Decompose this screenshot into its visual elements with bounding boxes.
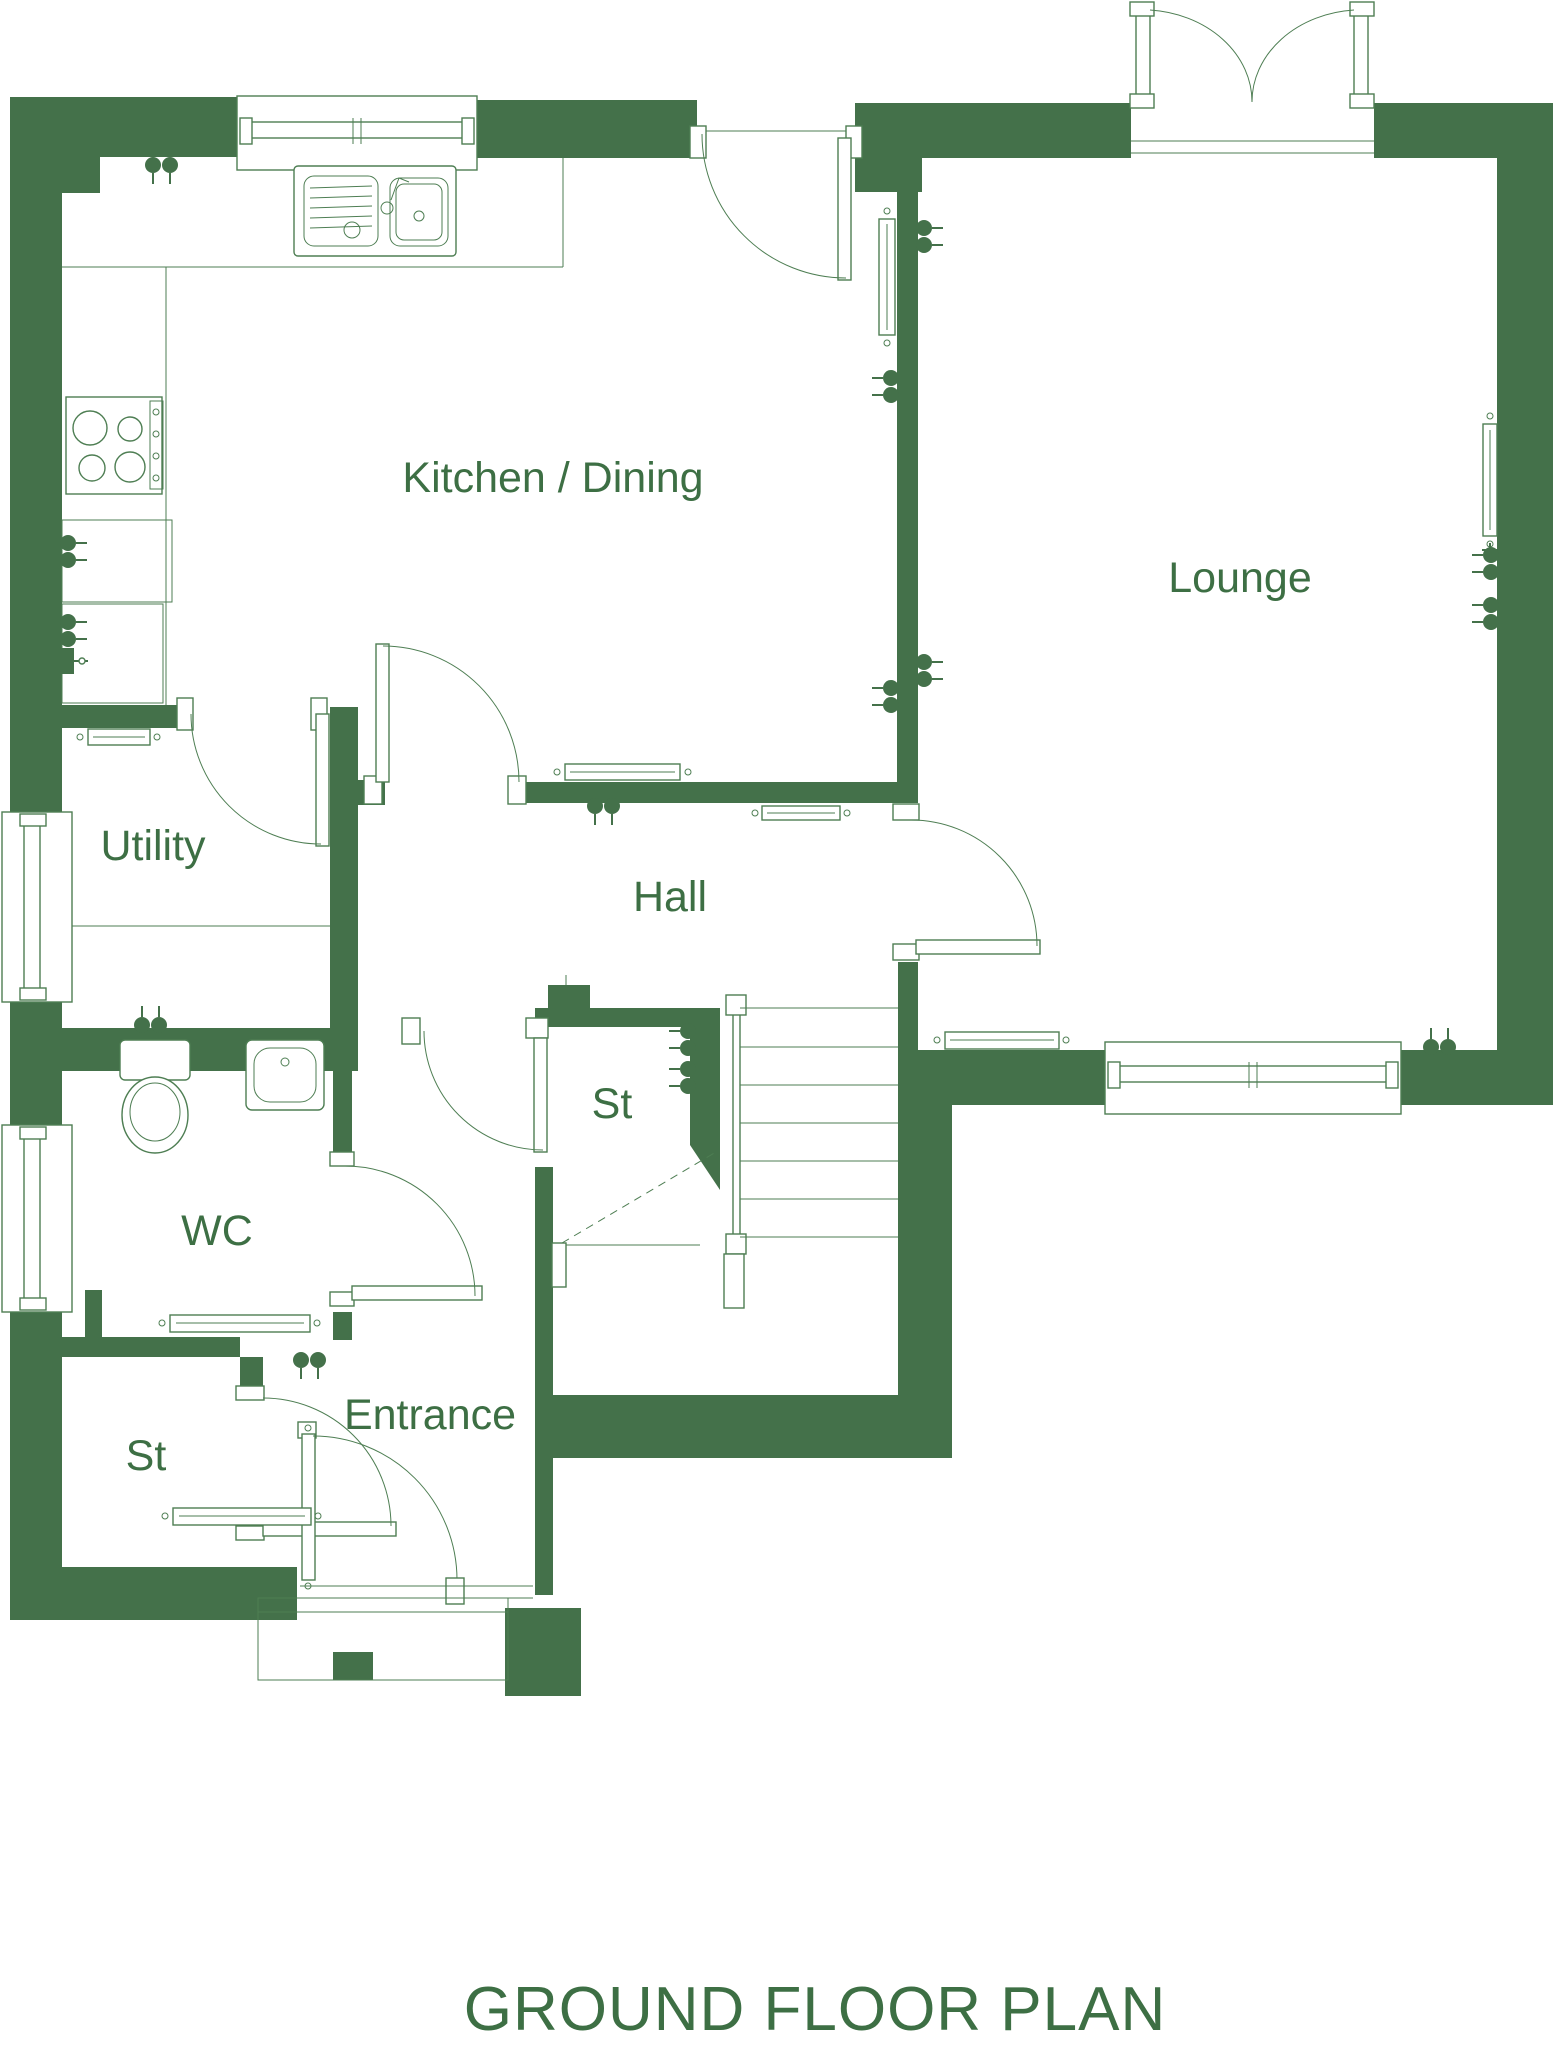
radiator (554, 764, 691, 780)
wall-segment (12, 1567, 297, 1620)
radiator (934, 1032, 1069, 1049)
wall-segment (535, 1167, 553, 1395)
wall-segment (62, 705, 177, 728)
understairs-store-door (402, 1018, 548, 1152)
radiator (1483, 413, 1497, 547)
wall-segment (535, 1458, 553, 1595)
floor-plan-drawing: Kitchen / Dining Lounge Utility Hall St … (0, 0, 1564, 2048)
wc-window (2, 1125, 72, 1312)
porch-canopy (258, 1586, 533, 1680)
wall-segment (898, 962, 918, 1050)
wall-segment (535, 1395, 952, 1458)
room-label-lounge: Lounge (1168, 554, 1312, 602)
wall-segment (548, 985, 590, 1008)
walls (10, 97, 1553, 1696)
plan-title: GROUND FLOOR PLAN (464, 1975, 1167, 2044)
wash-basin (246, 1040, 324, 1110)
wall-segment (333, 1312, 352, 1340)
radiator (159, 1315, 320, 1332)
french-doors (1130, 2, 1374, 153)
hob (66, 397, 163, 494)
wall-segment (10, 1000, 62, 1125)
room-label-utility: Utility (100, 822, 206, 870)
hall-lounge-door (893, 804, 1040, 960)
wall-segment (12, 157, 100, 193)
wall-segment (477, 100, 697, 158)
wall-segment (1374, 103, 1553, 158)
kitchen-sink (294, 166, 456, 256)
floor-plan-page: Kitchen / Dining Lounge Utility Hall St … (0, 0, 1564, 2048)
lounge-window (1105, 1042, 1401, 1114)
radiator (162, 1508, 321, 1525)
room-label-store-under-stairs: St (592, 1080, 633, 1128)
room-label-store-entrance: St (126, 1432, 167, 1480)
radiator (77, 729, 160, 745)
porch-pillar (505, 1608, 581, 1696)
wall-segment (333, 1071, 352, 1157)
front-door (298, 1422, 464, 1604)
kitchen-worktop (62, 158, 563, 926)
toilet (120, 1040, 190, 1153)
wall-segment (897, 158, 918, 803)
wall-segment (922, 103, 1131, 158)
wc-door (330, 1152, 482, 1306)
radiator (879, 208, 895, 346)
kitchen-hall-door (364, 644, 526, 804)
wall-segment (518, 782, 918, 803)
room-label-kitchen-dining: Kitchen / Dining (402, 454, 703, 502)
back-door (690, 126, 862, 280)
wall-segment (10, 97, 62, 812)
wall-segment (1497, 158, 1553, 1105)
wall-segment (240, 1357, 263, 1390)
wall-stub (85, 1290, 102, 1350)
radiator (752, 806, 850, 820)
room-label-hall: Hall (633, 873, 707, 921)
wall-segment (1398, 1050, 1553, 1105)
room-label-wc: WC (181, 1207, 253, 1255)
wall-segment (330, 707, 358, 1071)
utility-window (2, 812, 72, 1002)
wall-segment (535, 1008, 720, 1027)
kitchen-window (237, 96, 477, 170)
porch-pillar (333, 1652, 373, 1680)
wall-segment (898, 1050, 1107, 1105)
wall-segment (898, 1105, 952, 1395)
room-label-entrance: Entrance (344, 1391, 516, 1439)
double-socket (58, 157, 1499, 1379)
